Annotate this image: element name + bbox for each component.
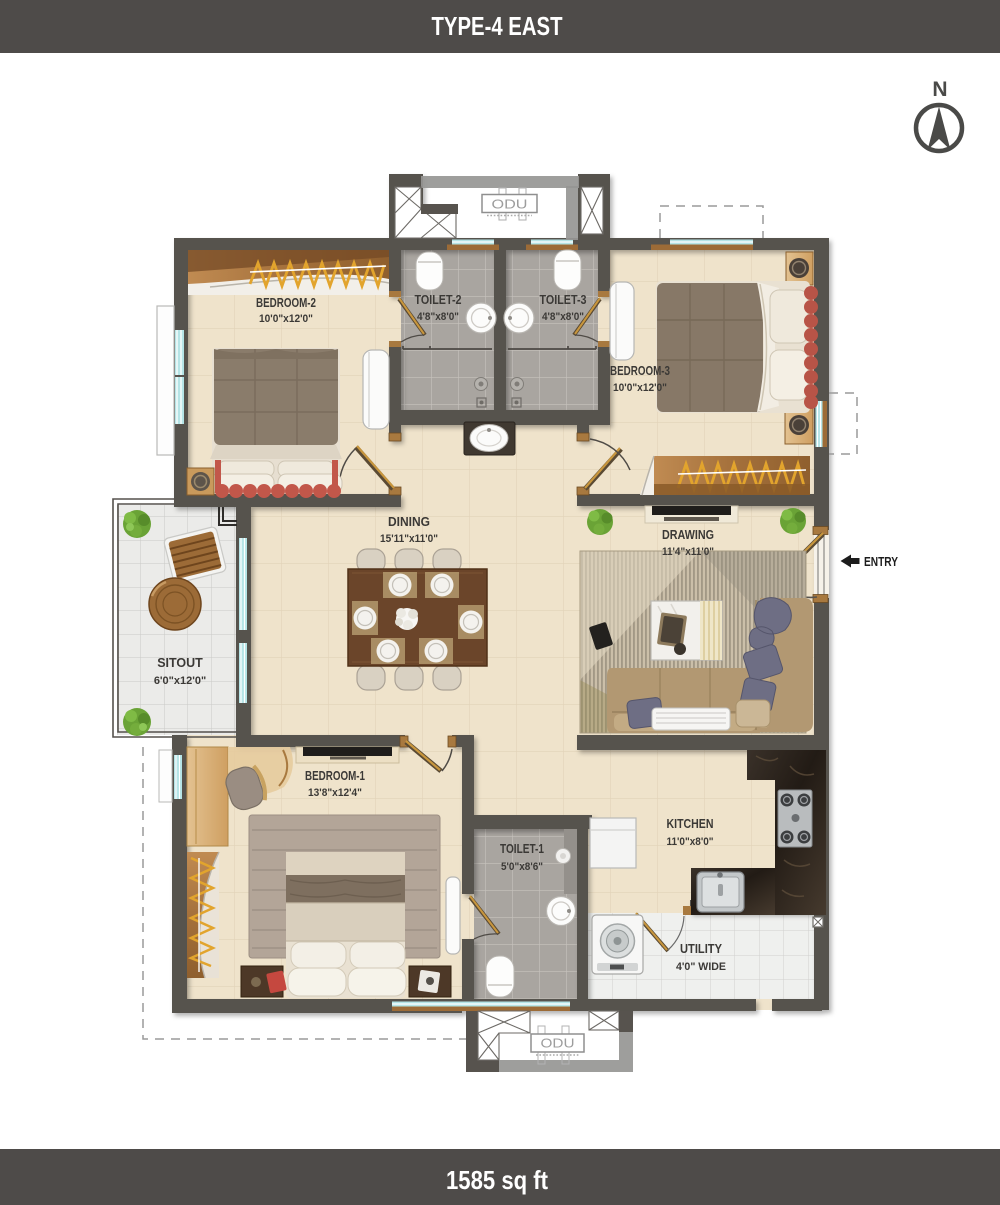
svg-text:ODU: ODU <box>492 198 528 212</box>
svg-text:10'0"x12'0": 10'0"x12'0" <box>613 382 667 394</box>
svg-text:4'8"x8'0": 4'8"x8'0" <box>542 311 584 323</box>
svg-text:5'0"x8'6": 5'0"x8'6" <box>501 861 543 873</box>
svg-text:15'11"x11'0": 15'11"x11'0" <box>380 533 438 545</box>
svg-text:ENTRY: ENTRY <box>864 554 898 569</box>
svg-text:1585 sq ft: 1585 sq ft <box>446 1165 548 1195</box>
svg-text:DINING: DINING <box>388 515 430 529</box>
svg-text:4'0" WIDE: 4'0" WIDE <box>676 961 726 973</box>
svg-text:SITOUT: SITOUT <box>157 656 203 670</box>
svg-text:10'0"x12'0": 10'0"x12'0" <box>259 313 313 325</box>
svg-text:ODU: ODU <box>541 1037 575 1051</box>
svg-text:13'8"x12'4": 13'8"x12'4" <box>308 787 362 799</box>
svg-text:4'8"x8'0": 4'8"x8'0" <box>417 311 459 323</box>
svg-text:6'0"x12'0": 6'0"x12'0" <box>154 675 206 687</box>
svg-text:TOILET-1: TOILET-1 <box>500 842 544 856</box>
svg-text:11'0"x8'0": 11'0"x8'0" <box>667 836 714 848</box>
svg-text:UTILITY: UTILITY <box>680 942 723 956</box>
svg-text:N: N <box>932 78 947 101</box>
svg-text:DRAWING: DRAWING <box>662 528 714 542</box>
svg-text:BEDROOM-1: BEDROOM-1 <box>305 769 365 783</box>
svg-text:BEDROOM-3: BEDROOM-3 <box>610 364 670 378</box>
svg-text:TOILET-3: TOILET-3 <box>540 293 587 307</box>
svg-text:TOILET-2: TOILET-2 <box>415 293 462 307</box>
svg-text:BEDROOM-2: BEDROOM-2 <box>256 296 316 310</box>
svg-text:TYPE-4 EAST: TYPE-4 EAST <box>432 11 563 41</box>
svg-text:11'4"x11'0": 11'4"x11'0" <box>662 546 714 558</box>
svg-text:KITCHEN: KITCHEN <box>667 817 714 831</box>
